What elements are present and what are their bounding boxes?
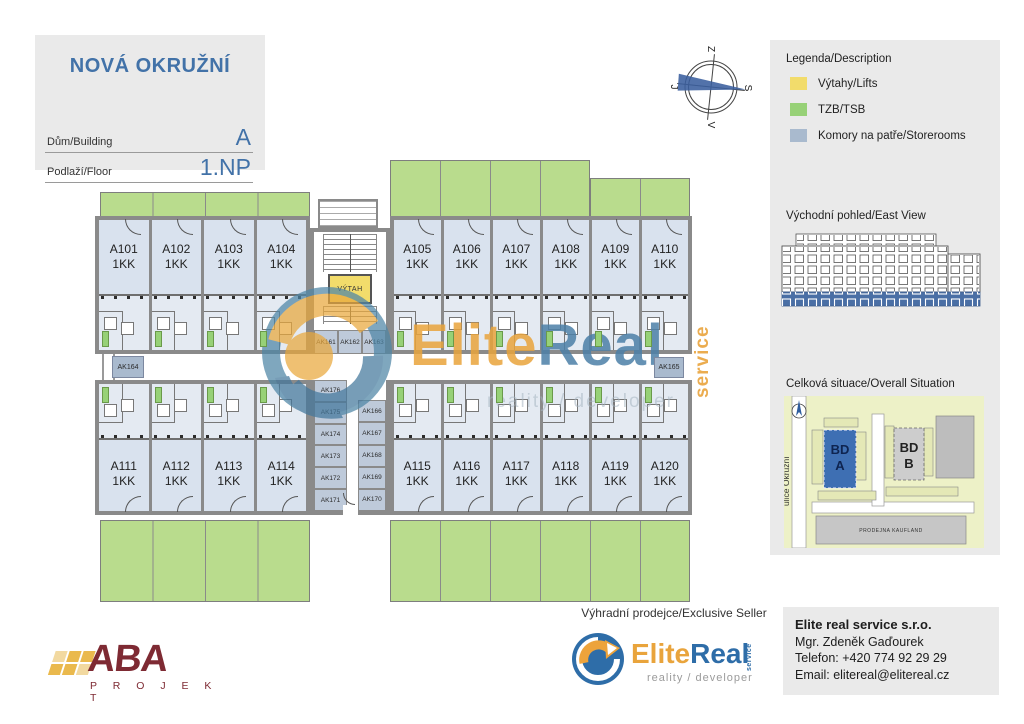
bd-a-label: BD	[831, 442, 850, 457]
kaufland-label: PRODEJNA KAUFLAND	[859, 528, 923, 534]
tzb-shaft	[546, 387, 553, 403]
tzb-color-swatch	[790, 103, 807, 116]
lift: VÝTAH	[328, 274, 372, 304]
legend-item-lifts: Výtahy/Lifts	[790, 77, 877, 90]
legend-title: Legenda/Description	[786, 53, 892, 65]
info-sidebar: Legenda/Description Výtahy/Lifts TZB/TSB…	[770, 40, 1000, 555]
situation-map: BD A BD B PRODEJNA KAUFLAND ulice Okružn…	[784, 396, 984, 548]
contact-block: Elite real service s.r.o. Mgr. Zdeněk Ga…	[783, 607, 999, 695]
aba-name: ABA	[86, 638, 170, 681]
contact-email: Email: elitereal@elitereal.cz	[795, 667, 999, 684]
corridor	[99, 354, 692, 380]
compass-east-label: V	[705, 122, 716, 129]
unit-block-bottom-left: A1111KK A1121KK A1131KK A1141KK	[95, 380, 310, 515]
tzb-shaft	[447, 331, 454, 347]
tzb-shaft	[155, 331, 162, 347]
elitereal-swirl-icon	[571, 632, 625, 686]
compass-south-label: J	[668, 85, 679, 90]
tzb-shaft	[645, 331, 652, 347]
unit-a118: A1181KK	[540, 384, 590, 511]
compass-rose-icon: Z S V J	[668, 42, 754, 132]
unit-label: A1181KK	[543, 459, 590, 489]
terrace-strip	[590, 178, 690, 218]
unit-label: A1201KK	[642, 459, 689, 489]
street-label: ulice Okružní	[784, 456, 791, 506]
tzb-shaft	[496, 331, 503, 347]
contact-company: Elite real service s.r.o.	[795, 617, 999, 634]
storeroom-ak161: AK161	[314, 330, 338, 354]
aba-projekt-logo: ABA P R O J E K T	[40, 644, 230, 706]
tzb-shaft	[260, 331, 267, 347]
unit-a107: A1071KK	[490, 220, 540, 350]
east-elevation-drawing	[780, 231, 986, 309]
unit-label: A1111KK	[99, 459, 149, 489]
tzb-shaft	[397, 387, 404, 403]
tzb-shaft	[595, 387, 602, 403]
unit-a108: A1081KK	[540, 220, 590, 350]
entrance-canopy	[318, 199, 378, 228]
bd-b-label: BD	[900, 440, 919, 455]
stair-core: VÝTAH AK161 AK162 AK163	[310, 228, 390, 354]
legend-item-tzb: TZB/TSB	[790, 103, 865, 116]
unit-label: A1031KK	[204, 242, 254, 272]
terrace-strip	[100, 192, 310, 218]
corridor-landing	[358, 380, 386, 400]
tzb-shaft	[595, 331, 602, 347]
storeroom-ak176: AK176	[314, 380, 347, 402]
storeroom-ak172: AK172	[314, 467, 347, 489]
unit-label: A1051KK	[394, 242, 441, 272]
tzb-shaft	[102, 331, 109, 347]
garden-strip	[390, 520, 690, 602]
unit-label: A1171KK	[493, 459, 540, 489]
unit-label: A1091KK	[592, 242, 639, 272]
situation-title: Celková situace/Overall Situation	[786, 378, 955, 390]
unit-label: A1011KK	[99, 242, 149, 272]
tzb-shaft	[645, 387, 652, 403]
floor-plan-sheet: NOVÁ OKRUŽNÍ Dům/Building A Podlaží/Floo…	[0, 0, 1024, 724]
svg-text:A: A	[835, 458, 845, 473]
unit-label: A1021KK	[152, 242, 202, 272]
svg-text:B: B	[904, 456, 913, 471]
legend-item-label: Výtahy/Lifts	[818, 78, 877, 90]
storeroom-ak163: AK163	[362, 330, 386, 354]
storeroom-ak166: AK166	[358, 400, 386, 422]
elitereal-service-label: service	[746, 641, 753, 671]
legend-item-storerooms: Komory na patře/Storerooms	[790, 129, 966, 142]
tzb-shaft	[102, 387, 109, 403]
storeroom-ak170: AK170	[358, 489, 386, 511]
unit-label: A1121KK	[152, 459, 202, 489]
unit-label: A1131KK	[204, 459, 254, 489]
storeroom-ak162: AK162	[338, 330, 362, 354]
building-other	[936, 416, 974, 478]
unit-a109: A1091KK	[589, 220, 639, 350]
unit-label: A1061KK	[444, 242, 491, 272]
storeroom-ak167: AK167	[358, 422, 386, 444]
tzb-shaft	[546, 331, 553, 347]
unit-a106: A1061KK	[441, 220, 491, 350]
elitereal-wordmark: EliteReal	[631, 638, 749, 670]
storeroom-ak164: AK164	[112, 356, 144, 378]
unit-a104: A1041KK	[254, 220, 307, 350]
building-value: A	[236, 124, 251, 151]
unit-a117: A1171KK	[490, 384, 540, 511]
storeroom-ak165: AK165	[654, 357, 684, 378]
contact-phone: Telefon: +420 774 92 29 29	[795, 650, 999, 667]
unit-a101: A1011KK	[99, 220, 149, 350]
unit-label: A1071KK	[493, 242, 540, 272]
unit-a116: A1161KK	[441, 384, 491, 511]
compass-north-label: S	[742, 85, 753, 92]
floor-plan: A1011KK A1021KK A1031KK A1041KK A1051KK	[95, 155, 695, 605]
unit-a103: A1031KK	[201, 220, 254, 350]
tzb-shaft	[447, 387, 454, 403]
unit-a115: A1151KK	[394, 384, 441, 511]
unit-a102: A1021KK	[149, 220, 202, 350]
storeroom-ak175: AK175	[314, 402, 347, 424]
unit-block-top-right: A1051KK A1061KK A1071KK A1081KK A1091KK …	[390, 216, 692, 354]
unit-label: A1141KK	[257, 459, 307, 489]
tzb-shaft	[207, 331, 214, 347]
storeroom-column-left: AK176 AK175 AK174 AK173 AK172 AK171	[314, 380, 347, 511]
storeroom-column-right: AK166 AK167 AK168 AK169 AK170	[358, 380, 386, 511]
unit-label: A1161KK	[444, 459, 491, 489]
project-title: NOVÁ OKRUŽNÍ	[35, 55, 265, 78]
unit-block-bottom-right: A1151KK A1161KK A1171KK A1181KK A1191KK …	[390, 380, 692, 515]
storeroom-ak173: AK173	[314, 445, 347, 467]
tzb-shaft	[260, 387, 267, 403]
unit-block-top-left: A1011KK A1021KK A1031KK A1041KK	[95, 216, 310, 354]
storeroom-ak168: AK168	[358, 445, 386, 467]
unit-a119: A1191KK	[589, 384, 639, 511]
watermark-service-label: service	[692, 316, 714, 398]
unit-a110: A1101KK	[639, 220, 689, 350]
unit-a113: A1131KK	[201, 384, 254, 511]
stairs-lower	[323, 306, 377, 324]
east-view-title: Východní pohled/East View	[786, 210, 926, 222]
tzb-shaft	[397, 331, 404, 347]
building-row: Dům/Building A	[45, 119, 253, 153]
unit-a105: A1051KK	[394, 220, 441, 350]
unit-a120: A1201KK	[639, 384, 689, 511]
elitereal-tagline: reality / developer	[647, 672, 753, 684]
building-label: Dům/Building	[47, 136, 112, 148]
aba-subtitle: P R O J E K T	[90, 680, 230, 704]
unit-label: A1191KK	[592, 459, 639, 489]
terrace-strip	[390, 160, 590, 218]
legend-item-label: TZB/TSB	[818, 104, 865, 116]
unit-label: A1151KK	[394, 459, 441, 489]
tzb-shaft	[155, 387, 162, 403]
unit-a112: A1121KK	[149, 384, 202, 511]
tzb-shaft	[207, 387, 214, 403]
stairs-upper	[323, 234, 377, 272]
contact-person: Mgr. Zdeněk Gaďourek	[795, 634, 999, 651]
legend-item-label: Komory na patře/Storerooms	[818, 130, 966, 142]
unit-a114: A1141KK	[254, 384, 307, 511]
storeroom-ak174: AK174	[314, 424, 347, 446]
compass-west-label: Z	[705, 46, 716, 52]
unit-label: A1081KK	[543, 242, 590, 272]
storeroom-color-swatch	[790, 129, 807, 142]
title-block: NOVÁ OKRUŽNÍ Dům/Building A Podlaží/Floo…	[35, 35, 265, 170]
tzb-shaft	[496, 387, 503, 403]
rear-exit-door	[343, 505, 358, 517]
lift-color-swatch	[790, 77, 807, 90]
garden-strip	[100, 520, 310, 602]
unit-label: A1041KK	[257, 242, 307, 272]
exclusive-seller-line: Výhradní prodejce/Exclusive Seller	[568, 606, 780, 620]
storeroom-ak169: AK169	[358, 467, 386, 489]
elitereal-logo: EliteReal service reality / developer	[565, 628, 780, 694]
storeroom-row: AK161 AK162 AK163	[314, 330, 386, 354]
unit-label: A1101KK	[642, 242, 689, 272]
unit-a111: A1111KK	[99, 384, 149, 511]
